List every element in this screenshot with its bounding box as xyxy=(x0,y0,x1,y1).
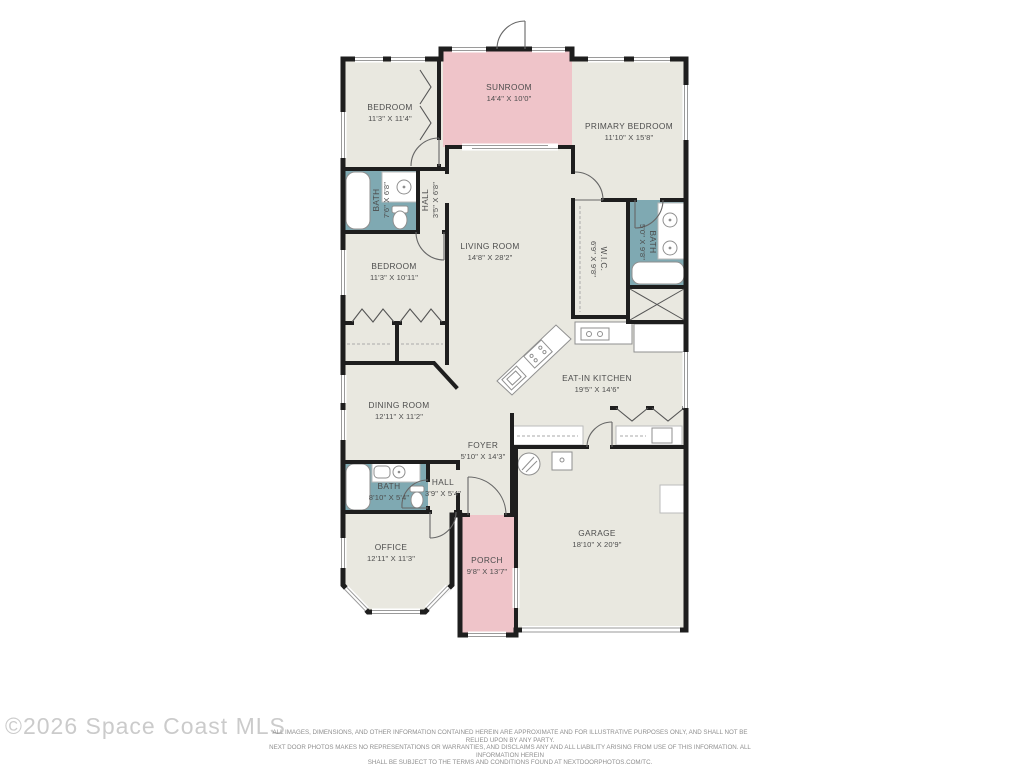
copyright-text: ©2026 Space Coast MLS xyxy=(5,713,286,740)
label-living-room-dims: 14'8" X 28'2" xyxy=(468,253,513,262)
disclaimer-text: ALL IMAGES, DIMENSIONS, AND OTHER INFORM… xyxy=(267,729,753,767)
svg-text:BATH: BATH xyxy=(648,231,658,254)
label-porch-name: PORCH xyxy=(471,555,503,565)
window xyxy=(355,56,383,63)
label-kitchen-dims: 19'5" X 14'6" xyxy=(575,385,620,394)
laundry-sink-icon xyxy=(652,428,672,443)
kitchen-counter xyxy=(634,324,684,352)
sink-icon xyxy=(663,213,677,227)
kitchen-counter xyxy=(575,322,632,344)
label-kitchen-name: EAT-IN KITCHEN xyxy=(562,373,632,383)
svg-text:7'6" X 6'8": 7'6" X 6'8" xyxy=(382,182,391,218)
disclaimer-line: SHALL BE SUBJECT TO THE TERMS AND CONDIT… xyxy=(267,759,753,767)
sliding-door xyxy=(462,144,558,151)
label-primary-bedroom-dims: 11'10" X 15'8" xyxy=(605,133,654,142)
label-bath3-dims: 8'10" X 5'4" xyxy=(369,493,410,502)
exterior-door xyxy=(497,21,525,49)
garage-shelf xyxy=(660,485,684,513)
porch-screen xyxy=(513,568,520,608)
sink-icon xyxy=(397,180,411,194)
bathtub-icon xyxy=(346,172,370,229)
label-office-name: OFFICE xyxy=(375,542,408,552)
window xyxy=(452,46,486,53)
disclaimer-line: NEXT DOOR PHOTOS MAKES NO REPRESENTATION… xyxy=(267,744,753,759)
window xyxy=(634,56,670,63)
water-heater-icon xyxy=(552,452,572,470)
svg-text:5'0" X 9'8": 5'0" X 9'8" xyxy=(638,224,647,260)
window xyxy=(340,410,347,440)
label-bedroom2-name: BEDROOM xyxy=(371,261,416,271)
label-bath3-name: BATH xyxy=(378,481,401,491)
window xyxy=(391,56,425,63)
window xyxy=(588,56,624,63)
electrical-panel-icon xyxy=(518,453,540,475)
svg-text:BATH: BATH xyxy=(371,189,381,212)
sink-icon xyxy=(374,466,390,478)
svg-text:HALL: HALL xyxy=(420,189,430,211)
toilet-icon xyxy=(410,486,424,508)
toilet-icon xyxy=(392,206,408,229)
svg-text:3'5" X 6'8": 3'5" X 6'8" xyxy=(431,182,440,218)
label-sunroom-dims: 14'4" X 10'0" xyxy=(487,94,532,103)
floor-plan-page: { "title": "Residential floor plan", "co… xyxy=(0,0,1024,768)
label-dining-room-name: DINING ROOM xyxy=(368,400,429,410)
label-foyer-name: FOYER xyxy=(468,440,498,450)
label-office-dims: 12'11" X 11'3" xyxy=(367,554,415,563)
sink-icon xyxy=(663,241,677,255)
label-sunroom-name: SUNROOM xyxy=(486,82,532,92)
svg-text:W.I.C.: W.I.C. xyxy=(599,247,609,272)
label-living-room-name: LIVING ROOM xyxy=(460,241,519,251)
bay-window xyxy=(372,609,420,616)
sink-icon xyxy=(393,466,405,478)
label-foyer-dims: 5'10" X 14'3" xyxy=(461,452,506,461)
label-hall2-dims: 3'9" X 5'4" xyxy=(425,489,461,498)
window xyxy=(340,375,347,403)
label-primary-bedroom-name: PRIMARY BEDROOM xyxy=(585,121,673,131)
bathtub-icon xyxy=(632,262,684,284)
garage-door xyxy=(522,626,680,634)
floor-plan-svg: BEDROOM 11'3" X 11'4" SUNROOM 14'4" X 10… xyxy=(0,0,1024,768)
svg-text:6'9" X 9'8": 6'9" X 9'8" xyxy=(589,241,598,277)
window xyxy=(340,250,347,295)
bathtub-icon xyxy=(346,464,370,510)
label-porch-dims: 9'8" X 13'7" xyxy=(467,567,508,576)
label-bedroom1-dims: 11'3" X 11'4" xyxy=(368,114,412,123)
disclaimer-line: ALL IMAGES, DIMENSIONS, AND OTHER INFORM… xyxy=(267,729,753,744)
porch-screen xyxy=(468,632,506,639)
label-bedroom2-dims: 11'3" X 10'11" xyxy=(370,273,418,282)
label-bedroom1-name: BEDROOM xyxy=(367,102,412,112)
window xyxy=(340,538,347,568)
window xyxy=(683,85,690,140)
label-hall2-name: HALL xyxy=(432,477,454,487)
label-garage-name: GARAGE xyxy=(578,528,616,538)
window xyxy=(532,46,565,53)
window xyxy=(683,352,690,408)
label-garage-dims: 18'10" X 20'9" xyxy=(572,540,621,549)
label-dining-room-dims: 12'11" X 11'2" xyxy=(375,412,423,421)
window xyxy=(340,112,347,158)
